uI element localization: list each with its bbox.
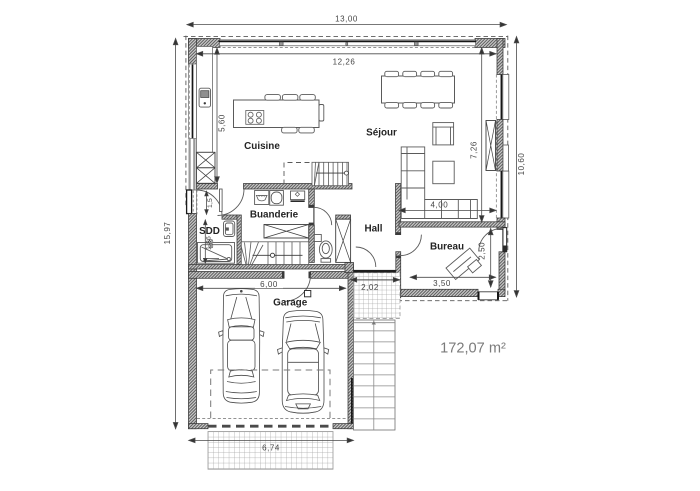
svg-text:Garage: Garage [273,298,308,309]
svg-text:15,97: 15,97 [163,222,172,245]
svg-text:2,50: 2,50 [478,242,487,260]
svg-text:172,07 m²: 172,07 m² [440,341,506,357]
svg-text:Buanderie: Buanderie [250,210,299,221]
svg-text:Hall: Hall [364,224,382,235]
svg-text:1,5: 1,5 [207,198,214,208]
svg-text:10,60: 10,60 [517,153,526,176]
svg-text:Bureau: Bureau [430,241,464,252]
svg-text:12,26: 12,26 [333,58,356,67]
svg-text:5,60: 5,60 [217,114,226,132]
svg-text:SDD: SDD [199,226,220,237]
svg-text:4,00: 4,00 [431,201,449,210]
svg-text:2,02: 2,02 [361,283,379,292]
svg-text:13,00: 13,00 [335,15,358,24]
svg-text:6,74: 6,74 [262,443,280,452]
svg-text:Séjour: Séjour [366,128,397,139]
svg-text:3,50: 3,50 [433,279,451,288]
svg-text:1,86: 1,86 [206,236,213,250]
svg-text:Cuisine: Cuisine [244,141,280,152]
svg-text:7,26: 7,26 [469,141,478,159]
svg-text:6,00: 6,00 [260,280,278,289]
